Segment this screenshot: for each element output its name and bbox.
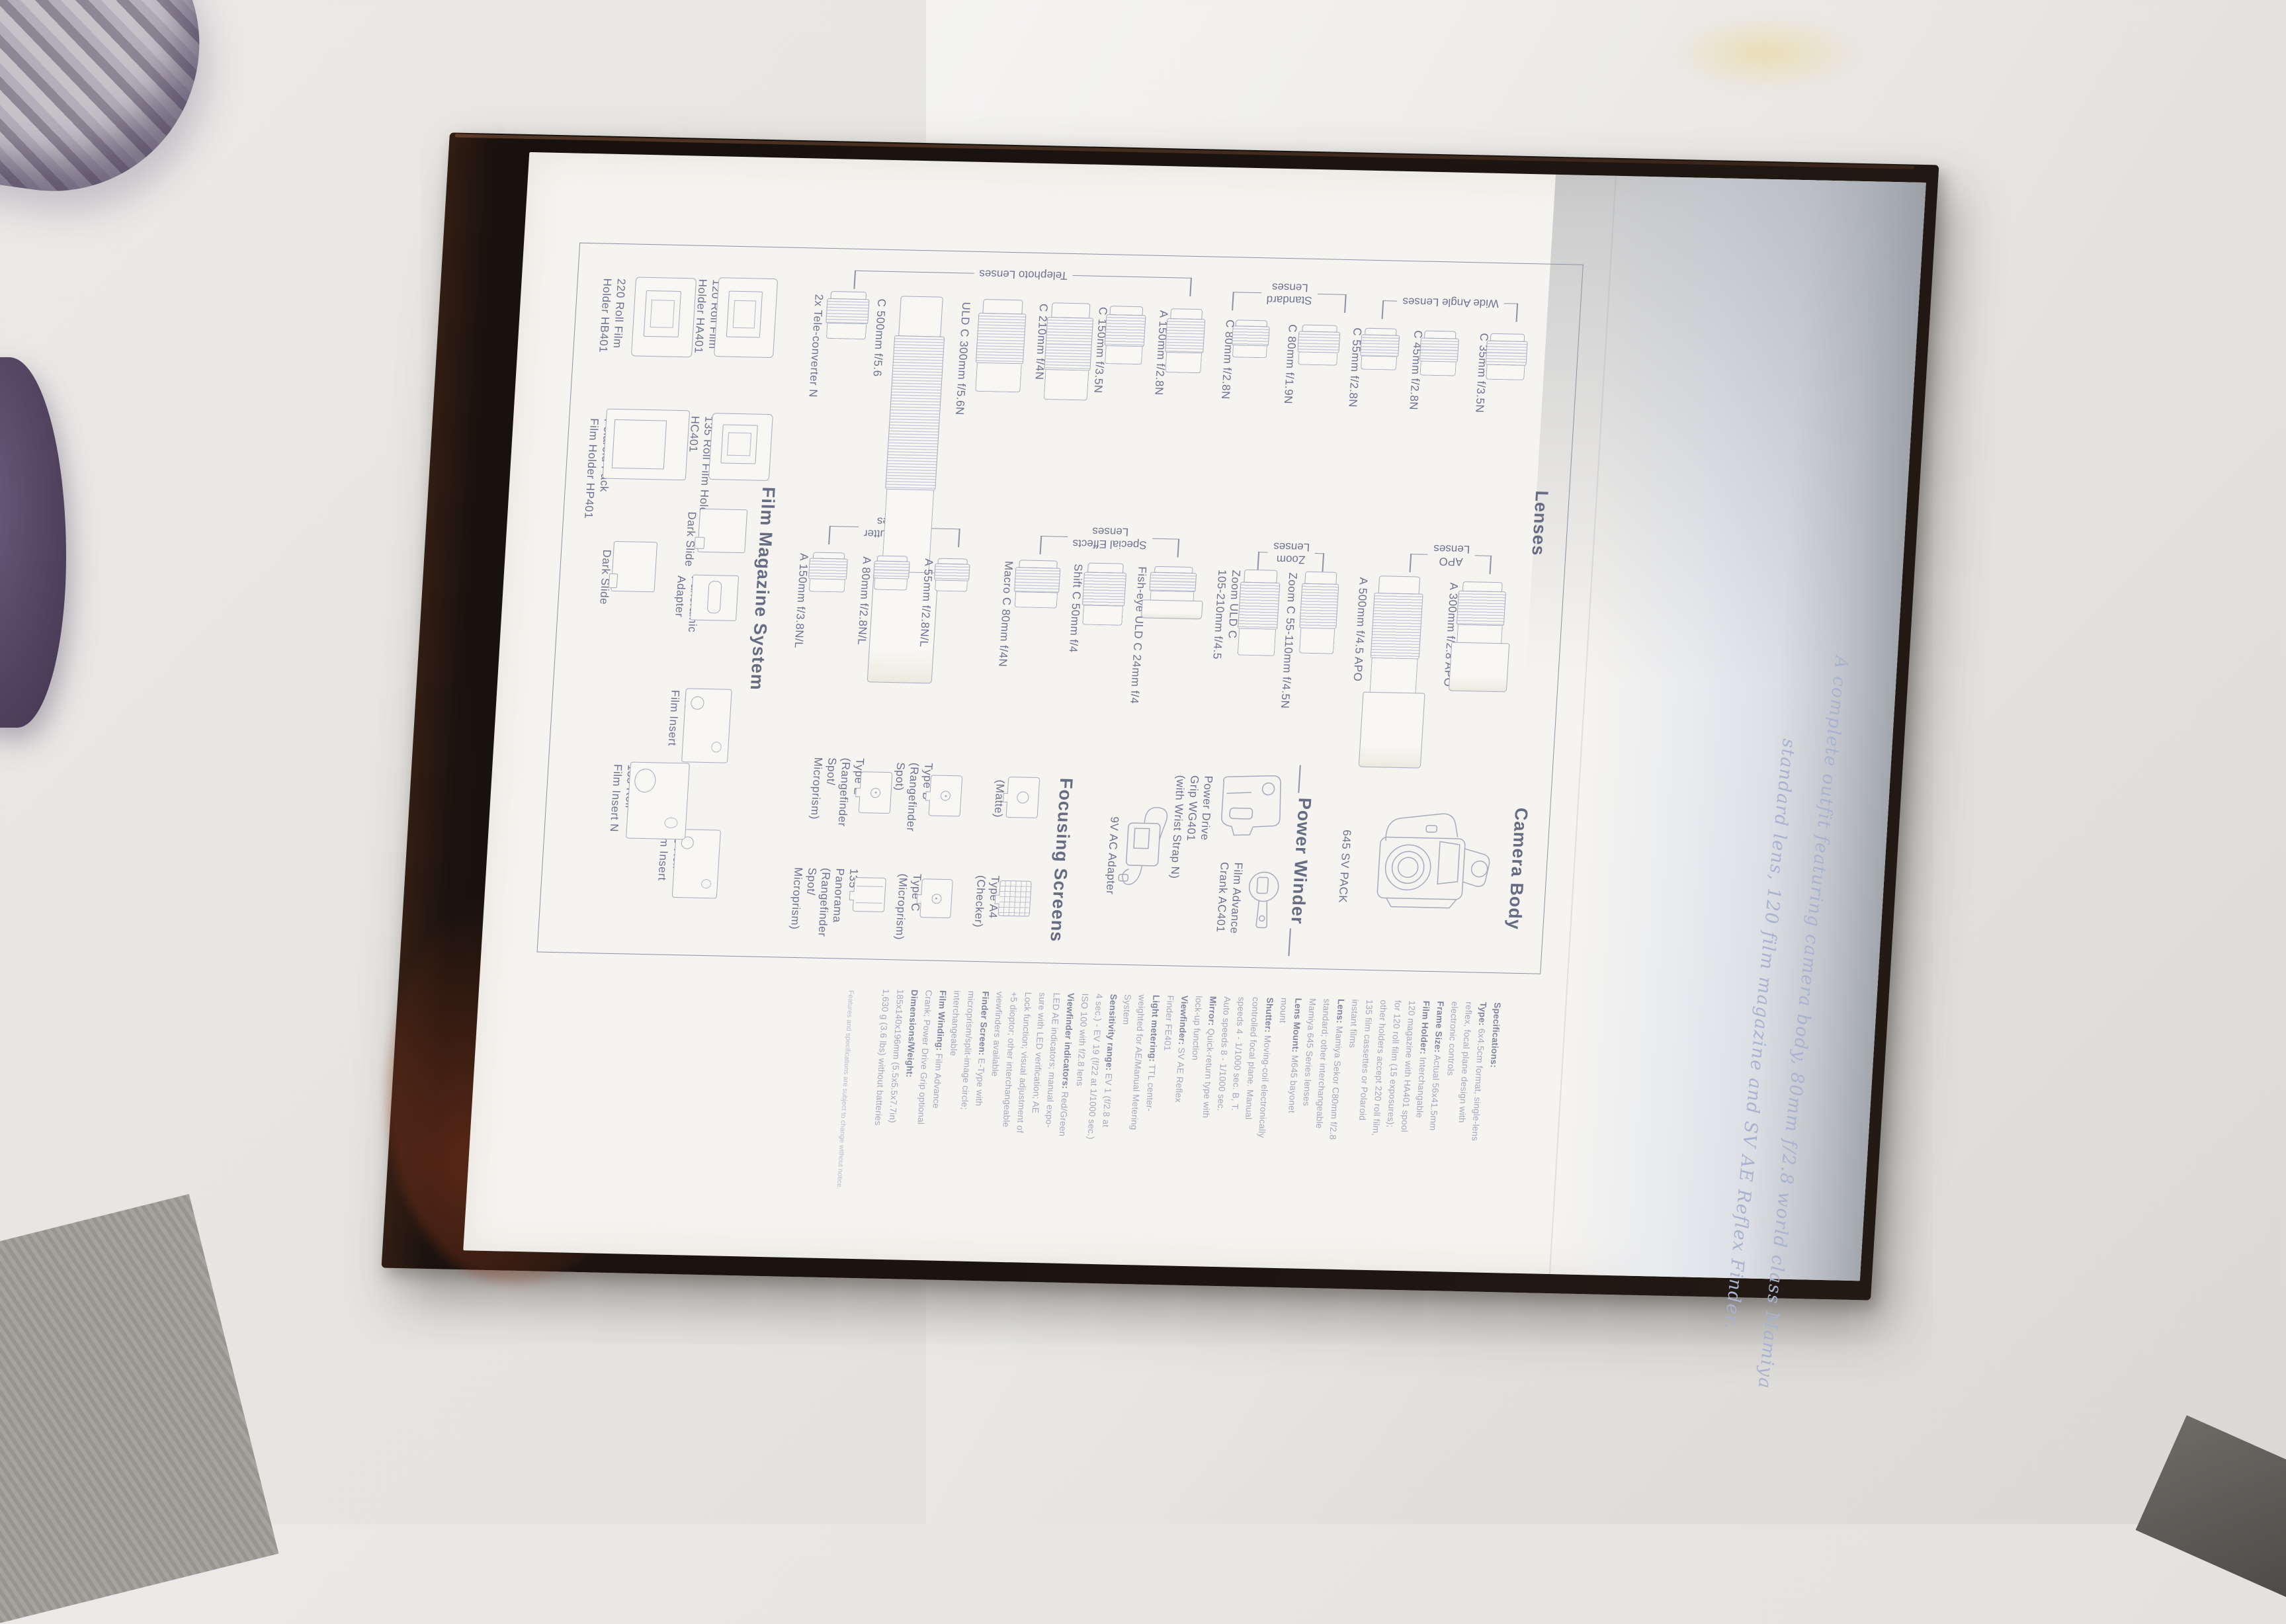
lens-illustration	[1298, 572, 1339, 654]
lens-hood-illustration	[1359, 692, 1425, 769]
lens-illustration	[808, 552, 849, 592]
magazine-item-illustration	[681, 688, 732, 763]
lens-group-label: Telephoto Lenses	[974, 266, 1074, 283]
light-smudge	[1667, 13, 1865, 93]
focusing-screen-illustration	[919, 878, 953, 918]
lens-illustration	[1418, 330, 1459, 376]
lens-group-label: StandardLenses	[1261, 279, 1319, 308]
lens-group-label: Wide Angle Lenses	[1396, 294, 1504, 311]
ac-adapter-illustration	[1113, 800, 1175, 894]
screen-type-label-3: Type C(Microprism)	[892, 873, 924, 940]
lens-illustration	[1455, 581, 1507, 645]
camera-body-illustration	[1356, 800, 1503, 925]
magazine-item-illustration	[626, 762, 690, 840]
lens-illustration	[872, 556, 910, 591]
lens-hood-illustration	[1141, 599, 1203, 619]
lens-illustration	[1103, 306, 1146, 364]
focusing-screen-illustration	[998, 880, 1032, 917]
lens-illustration	[1296, 324, 1341, 365]
carpet-corner	[0, 1194, 278, 1624]
lens-group-label: APOLenses	[1427, 541, 1475, 570]
lens-illustration	[1013, 560, 1061, 608]
winder-item-label-1: Film AdvanceCrank AC401	[1213, 862, 1245, 934]
power-grip-illustration	[1214, 773, 1289, 839]
focusing-screen-illustration	[929, 775, 963, 816]
focusing-screen-illustration	[1006, 777, 1040, 818]
lens-illustration	[1484, 333, 1528, 380]
magazine-item-illustration	[611, 541, 657, 592]
magazine-item-illustration	[631, 277, 697, 358]
lens-illustration	[1081, 562, 1127, 625]
lens-illustration	[1148, 566, 1197, 604]
lens-illustration	[1231, 320, 1270, 358]
lens-illustration	[974, 299, 1027, 392]
lens-illustration	[1359, 328, 1400, 370]
lens-illustration	[1368, 576, 1424, 695]
focusing-screen-illustration	[859, 771, 893, 814]
magazine-item-illustration	[690, 575, 739, 621]
lens-illustration	[1042, 302, 1095, 400]
page-edge-shadow	[1525, 175, 1926, 688]
lens-illustration	[1164, 308, 1206, 373]
lens-group-bracket: ZoomLenses	[1258, 552, 1324, 554]
brochure-book: A complete outfit featuring camera body,…	[382, 132, 1939, 1300]
lens-group-label: Special EffectsLenses	[1067, 523, 1154, 553]
winder-item-label-0: Power DriveGrip WG401(with Wrist Strap N…	[1167, 775, 1215, 879]
lens-illustration	[825, 291, 870, 339]
screen-type-label-5: 135Panorama(RangefinderSpot/Microprism)	[787, 867, 861, 937]
lens-group-bracket: Wide Angle Lenses	[1382, 300, 1518, 304]
magazine-item-illustration	[697, 509, 747, 553]
lens-group-label: ZoomLenses	[1267, 539, 1315, 568]
magazine-item-illustration	[714, 277, 778, 358]
purple-cloth	[0, 357, 66, 728]
film-crank-illustration	[1243, 869, 1283, 929]
lens-illustration	[933, 558, 970, 592]
brochure-page: A complete outfit featuring camera body,…	[463, 152, 1926, 1281]
section-heading-lenses: Lenses	[1527, 490, 1552, 556]
lens-illustration	[1236, 570, 1281, 656]
specs-footnote: Features and specifications are subject …	[833, 990, 855, 1228]
magazine-item-illustration	[708, 413, 773, 481]
lens-hood-illustration	[1449, 642, 1509, 693]
focusing-screen-illustration	[853, 877, 886, 912]
magazine-item-illustration	[603, 409, 690, 481]
striped-hose-object	[0, 0, 217, 210]
magazine-item-label-0: 220 Roll FilmHolder HB401	[596, 278, 628, 353]
